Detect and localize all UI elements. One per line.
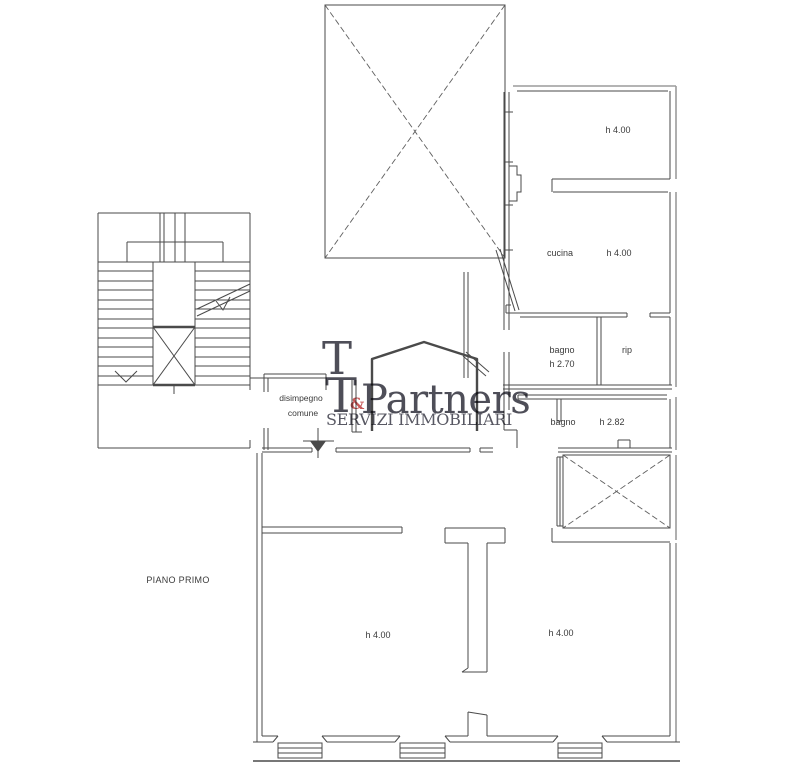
room-label-camera-bl-height: h 4.00 bbox=[355, 630, 401, 640]
entrance-door-symbol bbox=[303, 428, 334, 458]
window-icon bbox=[558, 743, 602, 758]
room-label-bagno2-height: h 2.82 bbox=[589, 417, 635, 427]
floor-plan-drawing bbox=[0, 0, 812, 768]
staircase bbox=[98, 213, 264, 448]
floor-plan: T T & Partners SERVIZI IMMOBILIARI h 4.0… bbox=[0, 0, 812, 768]
room-label-bagno1-name: bagno bbox=[539, 345, 585, 355]
elevator-shaft bbox=[153, 327, 195, 385]
stair-break-line bbox=[197, 291, 250, 316]
room-label-bagno1-height: h 2.70 bbox=[539, 359, 585, 369]
cucina-door-leaf bbox=[496, 250, 515, 311]
room-label-camera-br-height: h 4.00 bbox=[538, 628, 584, 638]
room-label-rip-name: rip bbox=[609, 345, 645, 355]
windows bbox=[278, 743, 602, 758]
room-label-disimpegno-line2: comune bbox=[273, 408, 333, 418]
stair-break-line bbox=[197, 284, 250, 309]
balcony-jamb bbox=[509, 166, 521, 201]
floor-title: PIANO PRIMO bbox=[146, 575, 210, 585]
room-label-bagno2-name: bagno bbox=[540, 417, 586, 427]
watermark-house-icon bbox=[372, 342, 477, 431]
window-icon bbox=[400, 743, 445, 758]
room-label-cucina-height: h 4.00 bbox=[596, 248, 642, 258]
bottom-rooms-walls bbox=[257, 453, 505, 742]
window-icon bbox=[278, 743, 322, 758]
room-label-cucina-name: cucina bbox=[537, 248, 583, 258]
room-label-camera-top-right-height: h 4.00 bbox=[595, 125, 641, 135]
light-well-top bbox=[325, 5, 505, 258]
light-well-lower bbox=[552, 455, 670, 542]
room-label-disimpegno-line1: disimpegno bbox=[271, 393, 331, 403]
